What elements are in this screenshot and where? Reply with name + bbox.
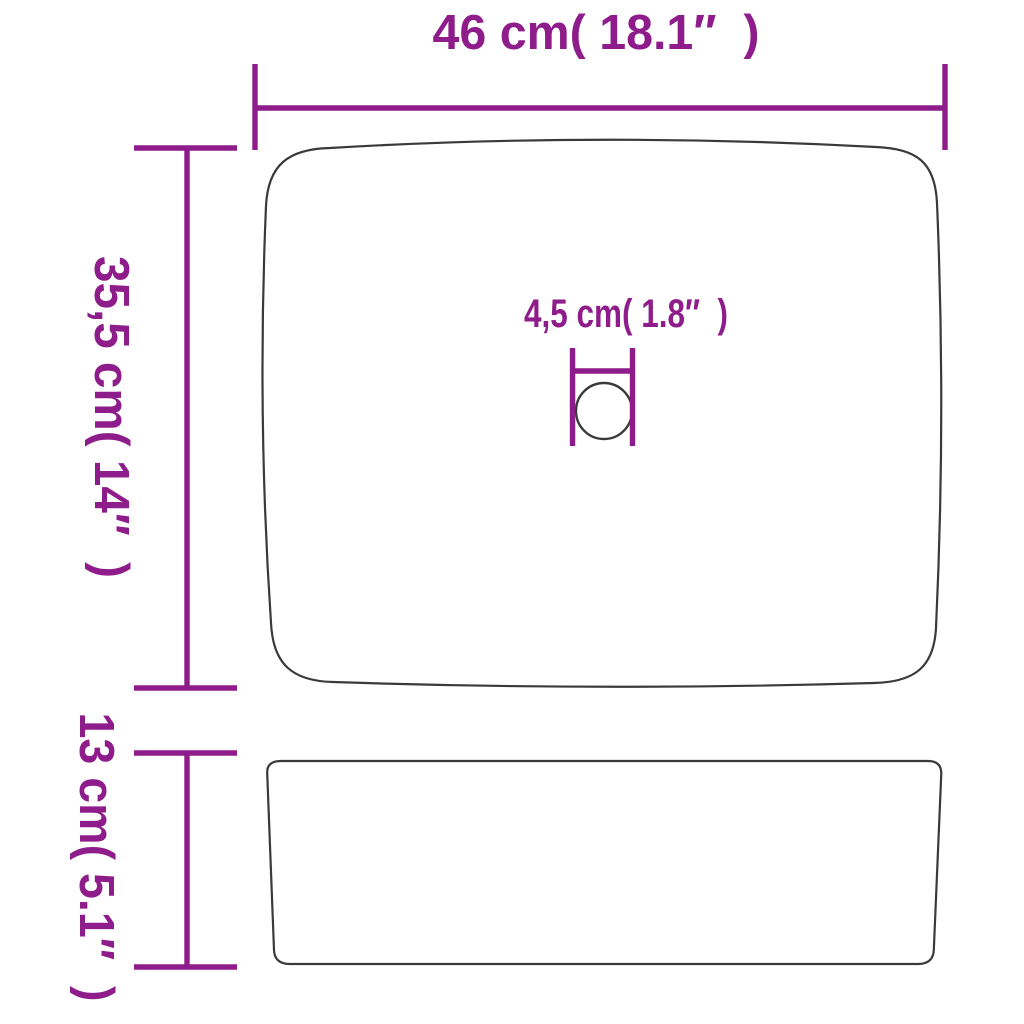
- dimension-diagram-svg: 46 cm( 18.1″ ) 35,5 cm( 14″ ) 4,5 cm( 1.…: [0, 0, 1024, 1024]
- drain-dimension-label: 4,5 cm( 1.8″ ): [524, 292, 728, 336]
- product-dimension-diagram: 46 cm( 18.1″ ) 35,5 cm( 14″ ) 4,5 cm( 1.…: [0, 0, 1024, 1024]
- sink-side-view-outline: [267, 761, 941, 964]
- width-dimension-label: 46 cm( 18.1″ ): [433, 6, 760, 60]
- sink-top-view-outline: [262, 140, 941, 687]
- height-dimension-label: 13 cm( 5.1″ ): [69, 713, 123, 1002]
- depth-dimension-label: 35,5 cm( 14″ ): [84, 256, 138, 578]
- product-outlines: [262, 140, 941, 964]
- dimension-lines: [134, 64, 945, 967]
- dimension-labels: 46 cm( 18.1″ ) 35,5 cm( 14″ ) 4,5 cm( 1.…: [69, 6, 760, 1002]
- drain-hole-circle: [576, 383, 632, 439]
